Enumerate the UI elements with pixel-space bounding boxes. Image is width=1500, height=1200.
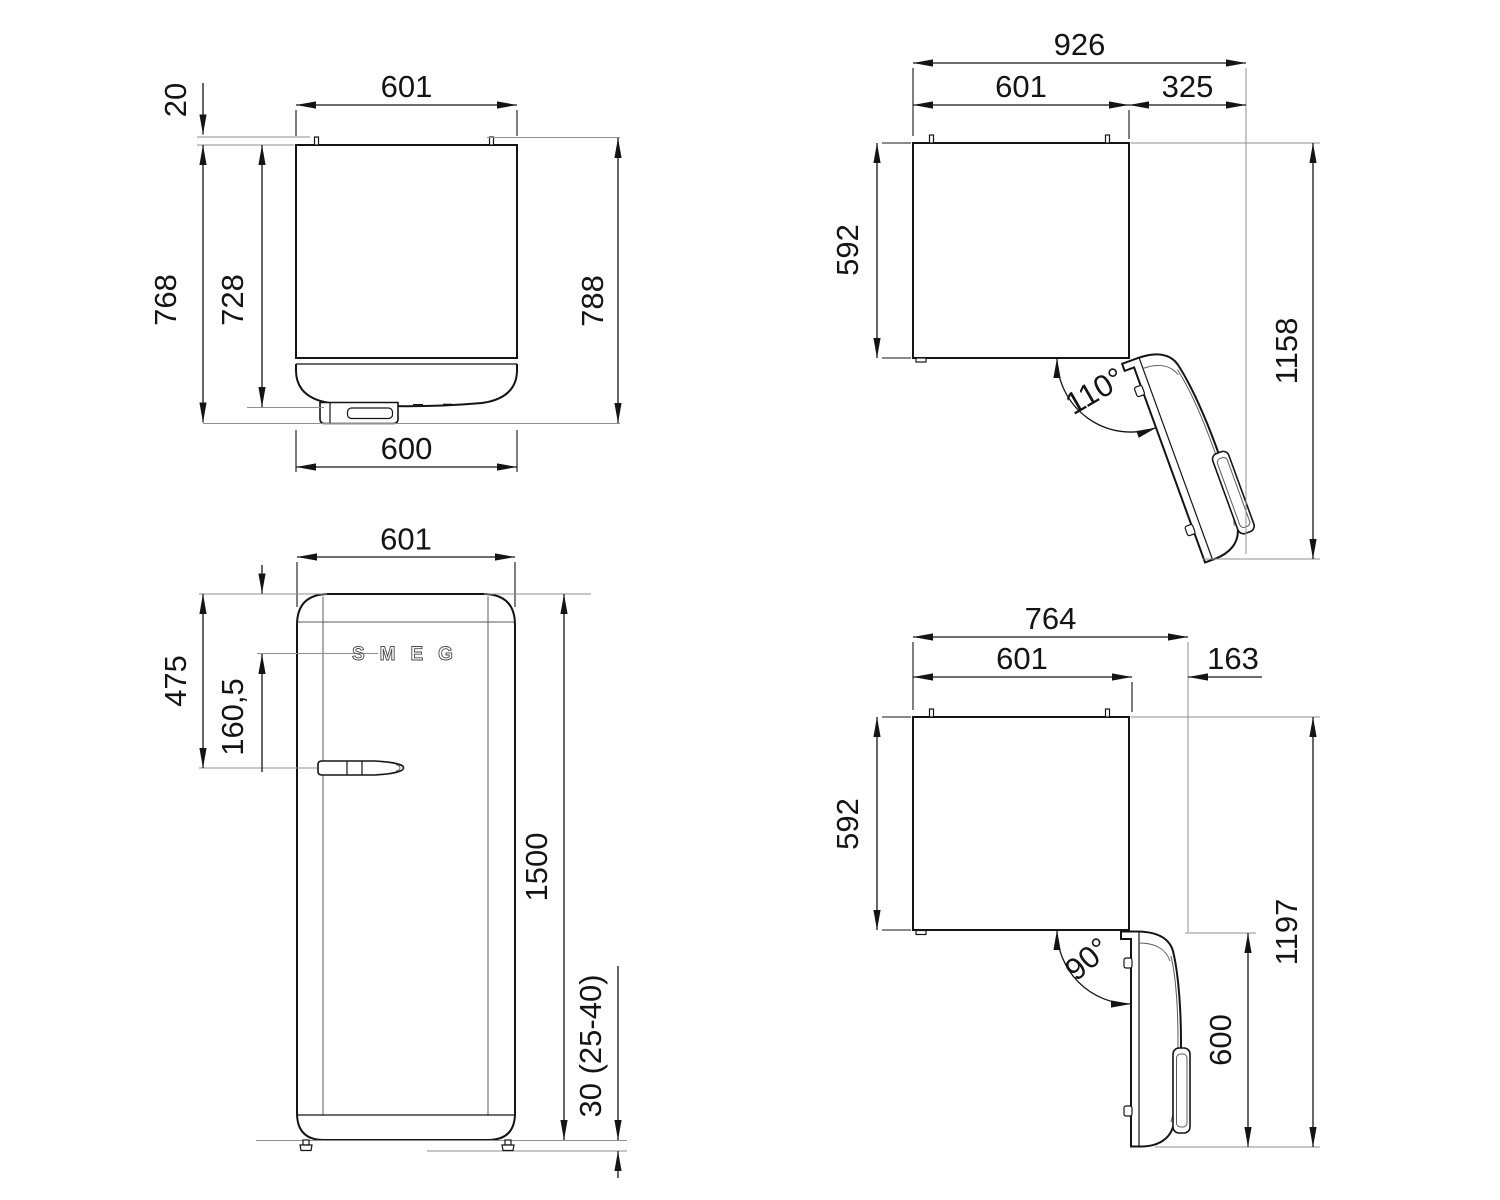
dim-label-601-110: 601 <box>995 69 1047 104</box>
view-front: SMEG 601 475 160,5 1500 <box>158 522 627 1179</box>
door-open-110 <box>1122 340 1260 566</box>
angle-90: 90° <box>1057 930 1131 1004</box>
fridge-front-outline <box>297 594 515 1140</box>
door-open-90 <box>1121 932 1190 1147</box>
cabinet-top-outline-110 <box>913 135 1129 362</box>
dim-label-926: 926 <box>1054 27 1106 62</box>
dim-feet-30: 30 (25-40) <box>573 966 618 1178</box>
dim-label-depth-768: 768 <box>148 274 183 326</box>
rear-spacer-pin <box>930 135 934 143</box>
view-top-closed: 601 20 768 728 788 600 <box>148 69 620 472</box>
dim-label-door-width: 600 <box>381 431 433 466</box>
dim-label-1197: 1197 <box>1269 899 1304 966</box>
dim-door-depth-600: 600 <box>1185 933 1256 1147</box>
door-handle-top-view <box>320 403 398 424</box>
angle-label-110: 110° <box>1059 360 1130 421</box>
angle-label-90: 90° <box>1058 930 1116 987</box>
dim-depth-592-110: 592 <box>830 143 911 358</box>
dim-160-5: 160,5 <box>215 565 262 772</box>
dim-label-front-601: 601 <box>380 522 432 557</box>
dim-label-600-door: 600 <box>1203 1014 1238 1066</box>
dim-depth-768: 768 <box>148 145 203 423</box>
dim-label-depth-728: 728 <box>215 274 250 326</box>
dim-door-projection-325: 325 <box>1129 69 1246 105</box>
dim-label-325: 325 <box>1162 69 1214 104</box>
dim-cabinet-width-601-90: 601 <box>913 641 1132 712</box>
dim-height-1500: 1500 <box>519 594 564 1140</box>
dim-depth-592-90: 592 <box>830 717 911 930</box>
dim-label-rear-spacer: 20 <box>158 83 193 117</box>
rear-spacer-pin <box>315 137 319 145</box>
dim-label-475: 475 <box>158 655 193 707</box>
dim-label-592-90: 592 <box>830 798 865 850</box>
dim-label-601-90: 601 <box>996 641 1048 676</box>
dim-label-592-110: 592 <box>830 224 865 276</box>
dim-door-width: 600 <box>296 430 517 472</box>
dim-width-top: 601 <box>296 69 517 136</box>
dim-label-764: 764 <box>1025 601 1077 636</box>
rear-spacer-pin <box>1106 135 1110 143</box>
adjustable-feet <box>300 1140 514 1151</box>
view-top-open-90: 90° 764 601 163 592 600 <box>830 601 1320 1147</box>
dim-cabinet-width-601: 601 <box>913 69 1129 139</box>
dim-label-depth-788: 788 <box>575 275 610 327</box>
front-foot-mark <box>916 358 926 362</box>
dim-label-1158: 1158 <box>1269 318 1304 385</box>
dim-label-feet: 30 (25-40) <box>573 974 608 1117</box>
rear-spacer-pin <box>1106 709 1110 717</box>
dim-door-projection-163: 163 <box>1188 641 1262 677</box>
cabinet-top-outline <box>296 137 517 424</box>
cabinet-top-outline-90 <box>913 709 1129 935</box>
technical-dimension-drawing: 601 20 768 728 788 600 <box>0 0 1500 1200</box>
door-front-curve <box>296 364 517 406</box>
rear-spacer-pin <box>490 137 494 145</box>
front-foot-mark <box>916 931 926 935</box>
rear-spacer-pin <box>930 709 934 717</box>
smeg-logo: SMEG <box>352 644 468 665</box>
dim-label-width-top: 601 <box>381 69 433 104</box>
fridge-dimension-diagram: 601 20 768 728 788 600 <box>0 0 1500 1200</box>
dim-label-1500: 1500 <box>519 833 554 902</box>
dim-label-160-5: 160,5 <box>215 678 250 756</box>
dim-label-163: 163 <box>1207 641 1259 676</box>
view-top-open-110: 110° 926 601 325 592 1158 <box>830 27 1320 566</box>
